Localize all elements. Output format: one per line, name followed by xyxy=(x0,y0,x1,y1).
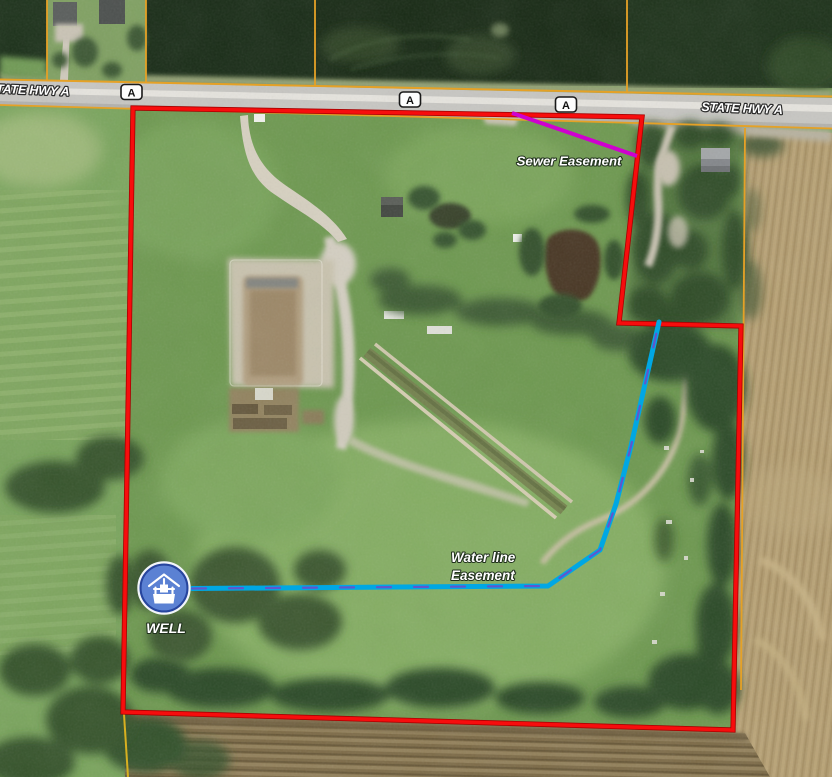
svg-text:STATE HWY A: STATE HWY A xyxy=(0,82,70,99)
svg-text:Water line: Water line xyxy=(451,550,516,565)
svg-text:Sewer Easement: Sewer Easement xyxy=(517,154,622,169)
svg-text:WELL: WELL xyxy=(146,620,186,636)
svg-text:A: A xyxy=(128,88,136,100)
svg-text:A: A xyxy=(562,100,570,112)
svg-text:A: A xyxy=(406,95,414,107)
svg-text:Easement: Easement xyxy=(451,568,515,583)
